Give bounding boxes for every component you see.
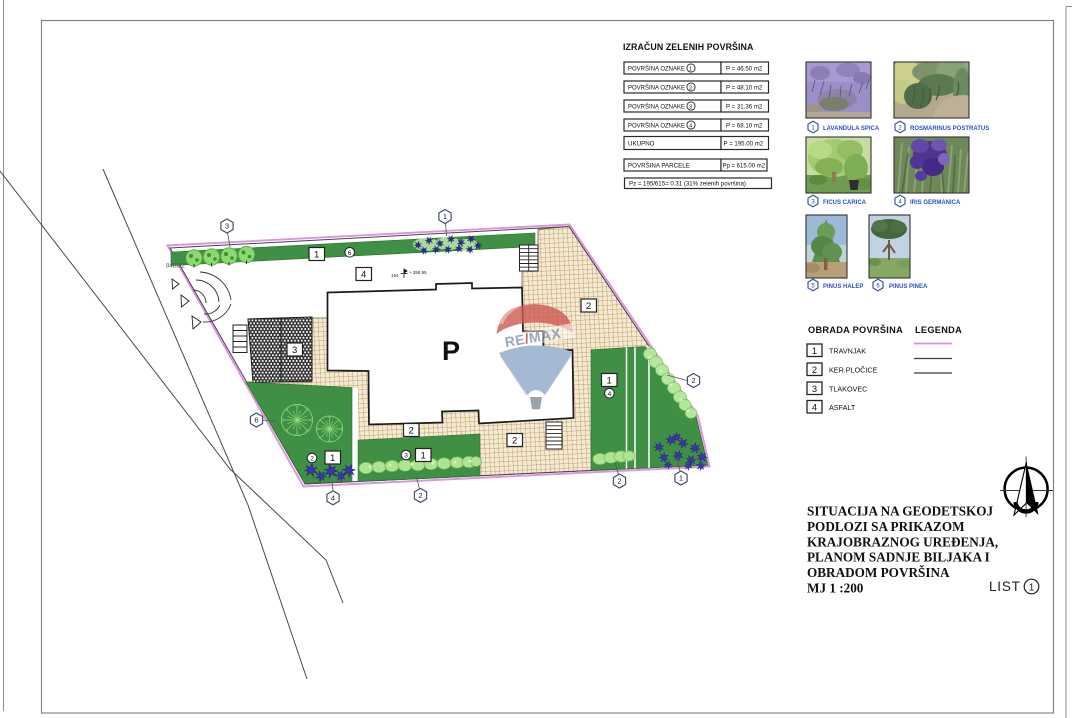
svg-text:LIST: LIST <box>989 579 1021 594</box>
svg-text:1: 1 <box>689 66 692 72</box>
svg-text:IRIS GERMANICA: IRIS GERMANICA <box>910 200 961 206</box>
svg-text:2: 2 <box>418 491 422 500</box>
svg-text:2: 2 <box>310 456 314 463</box>
svg-text:PINUS HALEP: PINUS HALEP <box>823 284 863 290</box>
svg-text:PINUS PINEA: PINUS PINEA <box>889 284 928 290</box>
svg-text:IZRAČUN ZELENIH POVRŠINA: IZRAČUN ZELENIH POVRŠINA <box>623 41 754 52</box>
svg-text:POVRŠINA OZNAKE: POVRŠINA OZNAKE <box>628 85 685 92</box>
svg-text:6: 6 <box>348 250 352 257</box>
svg-text:1: 1 <box>607 376 612 387</box>
svg-text:2: 2 <box>689 85 692 91</box>
svg-text:4: 4 <box>361 270 366 281</box>
svg-text:1: 1 <box>421 451 426 462</box>
svg-text:2: 2 <box>617 477 621 486</box>
svg-text:P = 31.36 m2: P = 31.36 m2 <box>726 104 763 111</box>
svg-text:1: 1 <box>443 212 447 221</box>
svg-text:3: 3 <box>812 383 817 394</box>
svg-text:KRAJOBRAZNOG UREĐENJA,: KRAJOBRAZNOG UREĐENJA, <box>807 534 998 549</box>
svg-text:TRAVNJAK: TRAVNJAK <box>829 347 866 356</box>
svg-text:194: 194 <box>391 273 399 278</box>
svg-text:P = 46.50 m2: P = 46.50 m2 <box>726 66 763 73</box>
svg-text:4: 4 <box>689 123 692 129</box>
svg-text:84B8/2: 84B8/2 <box>166 264 186 270</box>
svg-text:1: 1 <box>314 250 319 261</box>
svg-text:Pp = 615.00 m2: Pp = 615.00 m2 <box>723 164 766 170</box>
svg-text:POVRŠINA OZNAKE: POVRŠINA OZNAKE <box>628 66 685 73</box>
svg-text:SITUACIJA NA GEODETSKOJ: SITUACIJA NA GEODETSKOJ <box>807 504 994 519</box>
svg-text:3: 3 <box>689 104 692 110</box>
svg-text:1: 1 <box>812 345 817 356</box>
svg-text:2: 2 <box>586 301 591 312</box>
svg-text:1: 1 <box>679 474 683 483</box>
svg-text:OBRADA POVRŠINA: OBRADA POVRŠINA <box>808 324 903 335</box>
svg-text:POVRŠINA PARCELE: POVRŠINA PARCELE <box>628 163 690 170</box>
svg-text:P = 48.10 m2: P = 48.10 m2 <box>726 85 763 92</box>
svg-text:MJ 1 :200: MJ 1 :200 <box>807 581 864 596</box>
svg-text:POVRŠINA OZNAKE: POVRŠINA OZNAKE <box>628 123 685 130</box>
svg-text:LEGENDA: LEGENDA <box>915 325 962 335</box>
svg-text:OBRADOM POVRŠINA: OBRADOM POVRŠINA <box>807 565 950 580</box>
svg-text:3: 3 <box>404 453 408 460</box>
svg-text:6: 6 <box>254 416 258 425</box>
svg-text:TLAKOVEC: TLAKOVEC <box>829 385 867 394</box>
svg-text:4: 4 <box>812 401 817 412</box>
svg-text:P: P <box>442 336 460 366</box>
svg-text:2: 2 <box>691 376 695 385</box>
svg-text:4: 4 <box>608 391 612 398</box>
svg-text:1: 1 <box>1029 582 1035 593</box>
svg-text:P = 68.10 m2: P = 68.10 m2 <box>726 123 763 130</box>
svg-text:UKUPNO: UKUPNO <box>628 141 655 148</box>
svg-text:1: 1 <box>330 453 335 464</box>
svg-text:PLANOM SADNJE BILJAKA I: PLANOM SADNJE BILJAKA I <box>807 550 990 565</box>
svg-text:2: 2 <box>812 364 817 375</box>
svg-text:KER.PLOČICE: KER.PLOČICE <box>829 366 878 375</box>
svg-text:4: 4 <box>331 493 335 502</box>
svg-text:POVRŠINA OZNAKE: POVRŠINA OZNAKE <box>628 104 685 111</box>
svg-text:PODLOZI SA PRIKAZOM: PODLOZI SA PRIKAZOM <box>807 519 965 534</box>
svg-text:LAVANDULA SPICA: LAVANDULA SPICA <box>823 126 880 132</box>
svg-text:2: 2 <box>512 436 517 447</box>
svg-text:2: 2 <box>409 426 414 437</box>
svg-text:+ 355.95: + 355.95 <box>409 270 427 275</box>
svg-text:3: 3 <box>292 345 297 356</box>
svg-text:ASFALT: ASFALT <box>829 403 856 412</box>
svg-text:Pz = 195/615= 0.31 (31% zeleni: Pz = 195/615= 0.31 (31% zelenih površina… <box>629 181 746 188</box>
svg-text:3: 3 <box>225 222 229 231</box>
svg-text:ROSMARINUS POSTRATUS: ROSMARINUS POSTRATUS <box>910 126 989 132</box>
svg-text:FICUS CARICA: FICUS CARICA <box>823 200 867 206</box>
svg-text:P = 195.00 m2: P = 195.00 m2 <box>724 141 764 148</box>
